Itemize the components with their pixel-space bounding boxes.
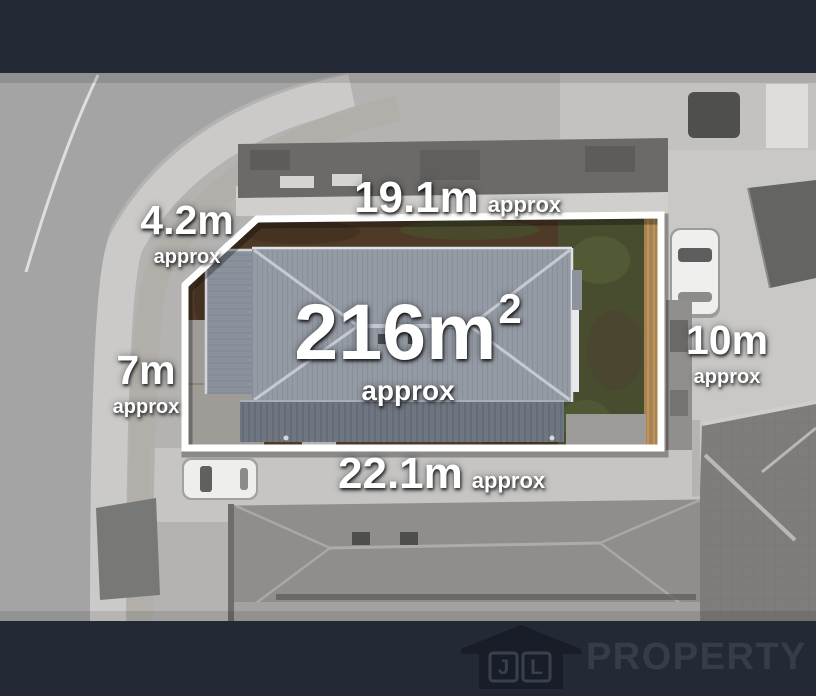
neighbour-roof-right (692, 402, 816, 621)
top-banner (0, 0, 816, 73)
dimension-top: 19.1m approx (354, 176, 561, 220)
lot-area-superscript: 2 (498, 288, 521, 330)
logo-initial-left: J (498, 656, 510, 679)
house-icon: J L (460, 623, 582, 691)
dimension-left-value: 7m (116, 350, 175, 391)
dimension-right-qualifier: approx (694, 367, 761, 387)
dimension-left: 7m approx (113, 350, 180, 417)
lot-area-value: 216m (294, 292, 496, 371)
dimension-top-left-value: 4.2m (140, 200, 233, 241)
lot-area-qualifier: approx (294, 377, 521, 405)
dimension-bottom: 22.1m approx (338, 452, 545, 496)
property-aerial-image: 19.1m approx 4.2m approx 7m approx 10m a… (0, 0, 816, 696)
neighbour-house-bottom (228, 498, 700, 621)
logo-initial-right: L (530, 656, 543, 679)
dimension-top-left-qualifier: approx (154, 247, 221, 267)
dimension-bottom-value: 22.1m (338, 452, 463, 496)
dimension-left-qualifier: approx (113, 397, 180, 417)
dimension-top-value: 19.1m (354, 176, 479, 220)
dimension-bottom-qualifier: approx (472, 470, 545, 492)
agency-logo: J L PROPERTY (460, 623, 807, 691)
dimension-right-value: 10m (686, 320, 768, 361)
lot-area-label: 216m 2 approx (294, 292, 521, 405)
dimension-top-left: 4.2m approx (140, 200, 233, 267)
dimension-right: 10m approx (686, 320, 768, 387)
parked-car-bottom (182, 458, 258, 500)
logo-wordmark: PROPERTY (586, 638, 807, 676)
dimension-top-qualifier: approx (488, 194, 561, 216)
